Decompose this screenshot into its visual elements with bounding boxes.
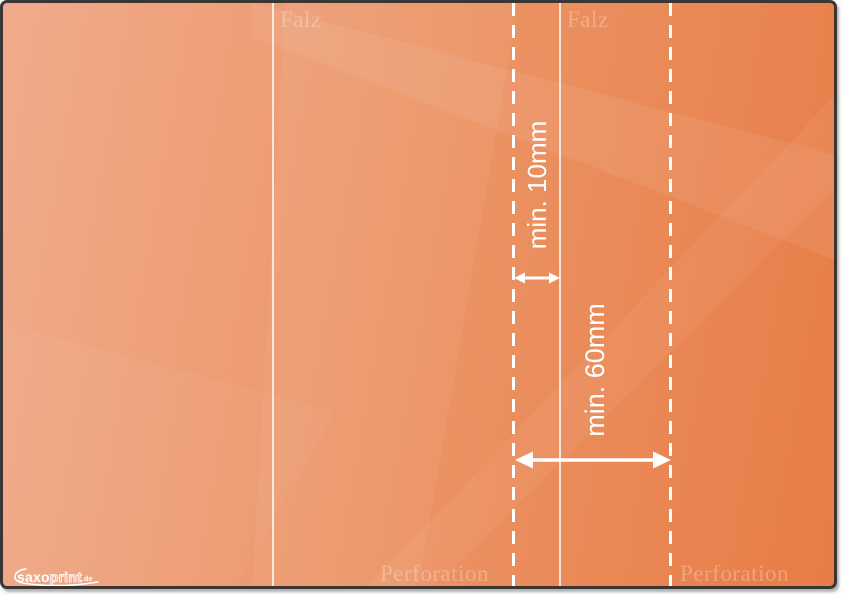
logo-text: saxoprint.de	[17, 569, 93, 588]
perforation-label-2: Perforation	[680, 561, 789, 587]
perforation-label-1: Perforation	[380, 561, 489, 587]
double-arrow-icon-small	[512, 269, 562, 287]
fold-line-2	[559, 3, 561, 586]
measurement-label-60mm: min. 60mm	[580, 280, 610, 460]
print-template-canvas: Falz Falz Perforation Perforation min. 1…	[0, 0, 842, 595]
logo-part-bold: saxo	[17, 569, 50, 585]
template-frame: Falz Falz Perforation Perforation min. 1…	[0, 0, 837, 589]
fold-label-2: Falz	[567, 7, 609, 33]
double-arrow-icon-large	[513, 449, 673, 471]
fold-line-1	[272, 3, 274, 586]
perforation-line-1	[512, 3, 515, 586]
perforation-line-2	[669, 3, 672, 586]
saxoprint-logo: saxoprint.de	[10, 567, 110, 589]
measurement-label-10mm: min. 10mm	[522, 100, 550, 270]
decorative-facet	[3, 3, 834, 586]
decorative-facet	[3, 3, 834, 586]
decorative-facet	[3, 3, 834, 586]
logo-part-tld: .de	[82, 576, 93, 583]
logo-part-outline: print	[50, 569, 82, 585]
fold-label-1: Falz	[280, 7, 322, 33]
decorative-facet	[3, 3, 834, 586]
